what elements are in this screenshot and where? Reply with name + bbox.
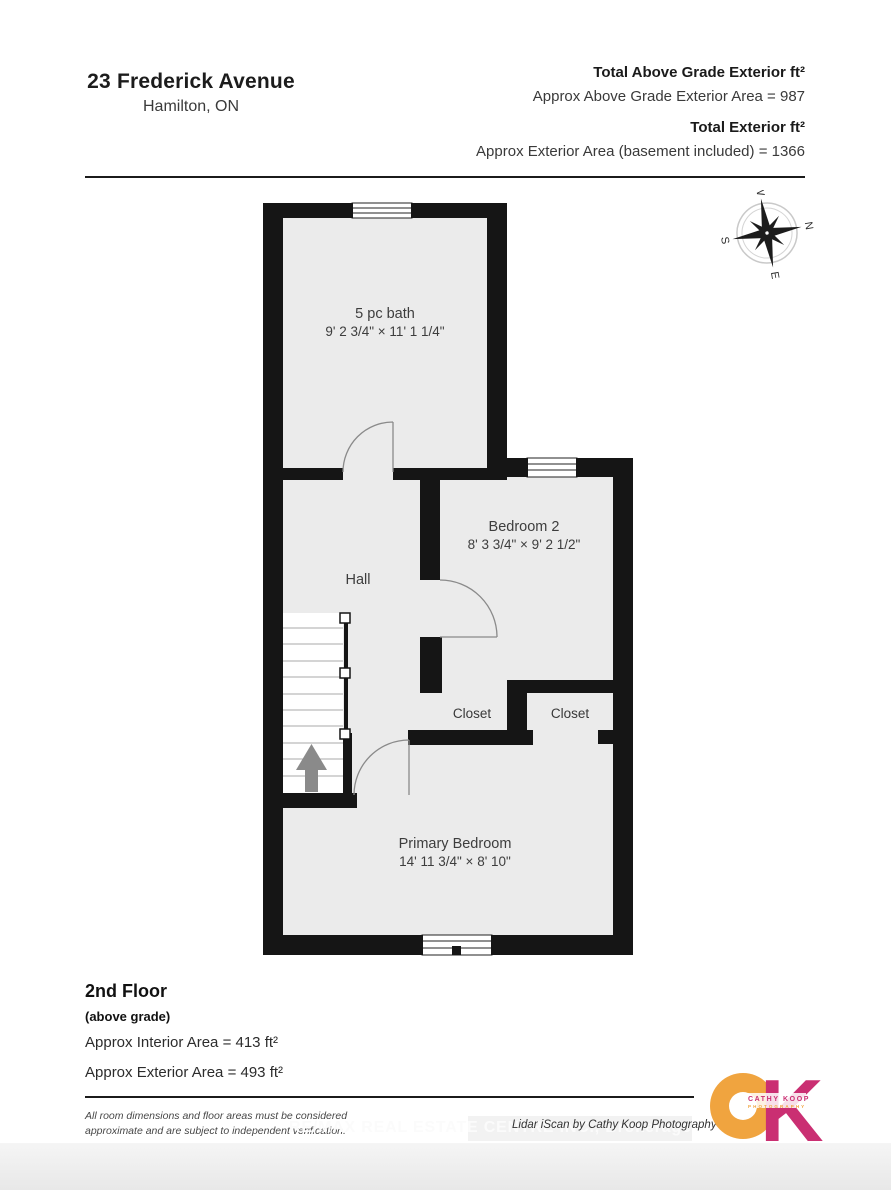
compass-rose-icon: N E S W (710, 190, 815, 287)
room-label: Primary Bedroom (399, 836, 512, 852)
total-exterior-value: Approx Exterior Area (basement included)… (476, 143, 805, 160)
compass-e-label: E (768, 271, 781, 280)
window-bath (348, 203, 416, 218)
room-hall: Hall (346, 572, 371, 588)
room-dims: 8' 3 3/4" × 9' 2 1/2" (468, 537, 581, 552)
room-closet-2: Closet (551, 706, 590, 721)
compass-n-label: N (802, 221, 815, 231)
total-exterior-label: Total Exterior ft² (476, 119, 805, 136)
floor-subtitle: (above grade) (85, 1009, 170, 1024)
page-title: 23 Frederick Avenue (85, 70, 297, 94)
window-bedroom2 (523, 458, 581, 477)
compass-w-label: W (753, 190, 767, 197)
room-label: Hall (346, 572, 371, 588)
compass-s-label: S (718, 236, 731, 245)
window-primary (418, 935, 496, 955)
exterior-area: Approx Exterior Area = 493 ft² (85, 1064, 283, 1081)
footer-divider (85, 1096, 694, 1098)
bottom-gray-band (0, 1143, 891, 1190)
room-dims: 14' 11 3/4" × 8' 10" (399, 854, 511, 869)
room-label: Bedroom 2 (489, 519, 560, 535)
room-closet-1: Closet (453, 706, 492, 721)
room-dims: 9' 2 3/4" × 11' 1 1/4" (325, 324, 444, 339)
ck-photography-logo: K CATHY KOOP PHOTOGRAPHY (710, 1068, 825, 1144)
total-above-grade-label: Total Above Grade Exterior ft² (476, 64, 805, 81)
logo-name-text: CATHY KOOP (748, 1096, 810, 1103)
header-divider (85, 176, 805, 178)
floorplan-page: 23 Frederick Avenue Hamilton, ON Total A… (0, 0, 891, 1190)
logo-photography-text: PHOTOGRAPHY (748, 1104, 806, 1109)
floorplan-drawing: 5 pc bath 9' 2 3/4" × 11' 1 1/4" Bedroom… (255, 190, 815, 965)
room-label: Closet (551, 706, 590, 721)
floor-title: 2nd Floor (85, 981, 167, 1002)
interior-area: Approx Interior Area = 413 ft² (85, 1034, 278, 1051)
page-subtitle: Hamilton, ON (85, 98, 297, 116)
address-block: 23 Frederick Avenue Hamilton, ON (85, 70, 297, 116)
room-label: 5 pc bath (355, 306, 415, 322)
room-label: Closet (453, 706, 492, 721)
total-above-grade-value: Approx Above Grade Exterior Area = 987 (476, 88, 805, 105)
scan-credit: Lidar iScan by Cathy Koop Photography (512, 1119, 717, 1131)
area-totals-block: Total Above Grade Exterior ft² Approx Ab… (476, 64, 805, 160)
